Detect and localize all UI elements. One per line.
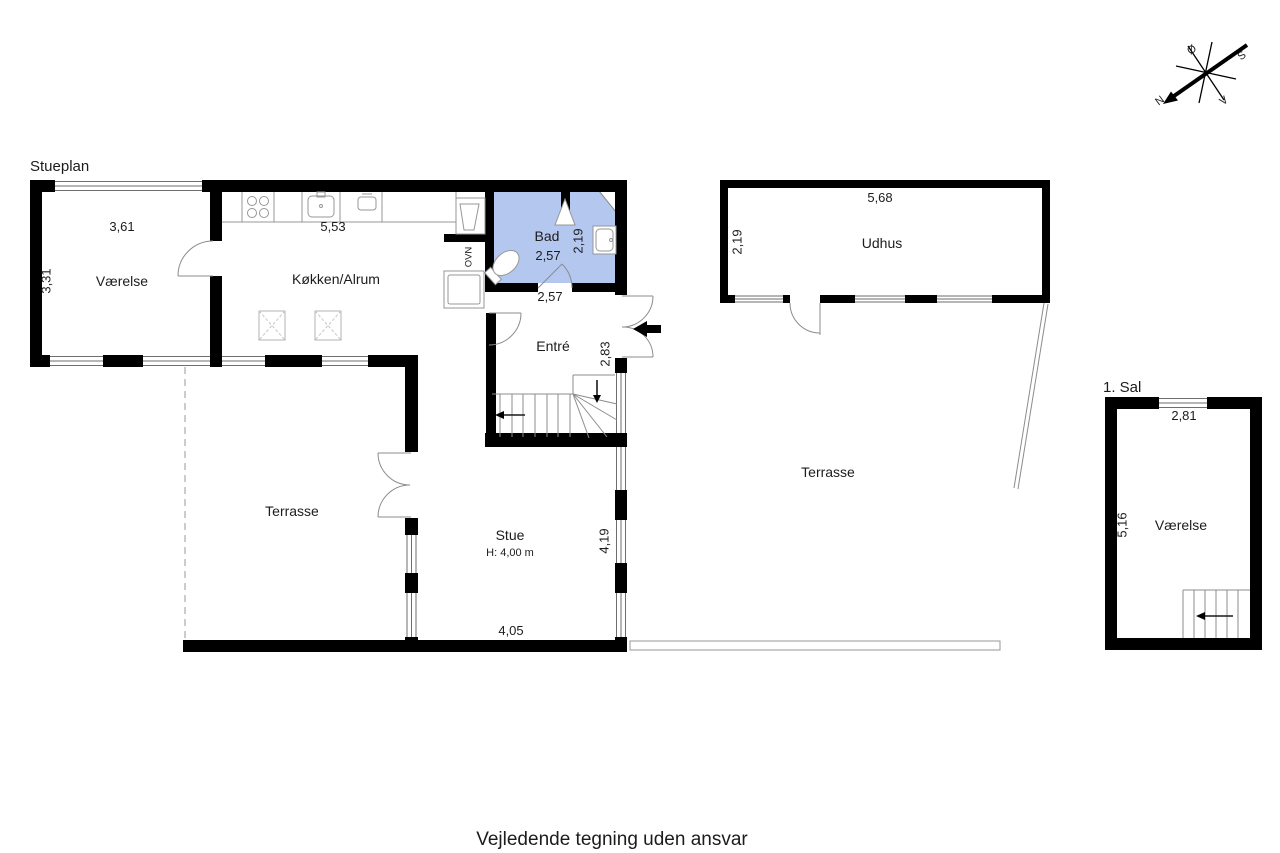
dim-koekken-width: 5,53 — [320, 219, 345, 234]
window-vaerelse-north — [55, 180, 202, 192]
window-south-4 — [322, 355, 368, 367]
window-south-2 — [143, 355, 210, 367]
dim-entre-width: 2,57 — [537, 289, 562, 304]
floorplan-svg: N Ø S V Stueplan 1. Sal Værelse 3,61 3,3… — [0, 0, 1280, 853]
compass-west-label: V — [1217, 94, 1231, 108]
room-label-koekken: Køkken/Alrum — [292, 271, 380, 287]
room-label-sal-vaerelse: Værelse — [1155, 517, 1207, 533]
room-label-entre: Entré — [536, 338, 570, 354]
oven-label: OVN — [464, 247, 475, 268]
room-label-bad: Bad — [535, 228, 560, 244]
door-udhus — [790, 303, 820, 335]
window-east-3 — [615, 520, 627, 563]
room-label-udhus: Udhus — [862, 235, 902, 251]
compass-icon: N Ø S V — [1153, 42, 1248, 108]
stairs-first-floor — [1183, 590, 1250, 638]
kitchen-sink-icon — [308, 192, 334, 217]
dim-bad-width: 2,57 — [535, 248, 560, 263]
window-south-1 — [50, 355, 103, 367]
washbasin-icon — [593, 226, 616, 254]
kitchen-counter — [222, 192, 456, 222]
ground-floor-title: Stueplan — [30, 158, 89, 175]
room-label-vaerelse: Værelse — [96, 273, 148, 289]
stairs-ground-floor — [492, 375, 617, 438]
dim-vaerelse-width: 3,61 — [109, 219, 134, 234]
compass-east-label: Ø — [1185, 42, 1199, 57]
window-east-1 — [615, 373, 627, 433]
window-east-4 — [615, 593, 627, 637]
window-east-2 — [615, 447, 627, 490]
window-stue-west-2 — [405, 593, 418, 637]
water-heater-icon — [456, 198, 485, 234]
dim-stue-depth: 4,19 — [597, 528, 612, 553]
window-stue-west-1 — [405, 535, 418, 573]
compass-north-label: N — [1153, 94, 1167, 108]
dim-vaerelse-depth: 3,31 — [39, 268, 54, 293]
door-vaerelse — [178, 241, 213, 276]
dim-stue-width: 4,05 — [498, 623, 523, 638]
room-label-terrasse-left: Terrasse — [265, 503, 319, 519]
window-udhus-1 — [735, 295, 783, 303]
floorplan-page: N Ø S V Stueplan 1. Sal Værelse 3,61 3,3… — [0, 0, 1280, 853]
dim-entre-depth: 2,83 — [598, 341, 613, 366]
kitchen-faucet-icon — [358, 194, 376, 210]
oven-appliance-icon — [444, 271, 484, 308]
compass-south-label: S — [1235, 49, 1248, 63]
dim-udhus-depth: 2,19 — [730, 229, 745, 254]
dim-bad-depth: 2,19 — [571, 228, 586, 253]
disclaimer-text: Vejledende tegning uden ansvar — [476, 829, 748, 850]
fence-diagonal-line — [1014, 303, 1048, 489]
kitchen-island-skylight-2 — [315, 311, 341, 340]
window-udhus-3 — [937, 295, 992, 303]
kitchen-island-skylight-1 — [259, 311, 285, 340]
stue-ceiling-height: H: 4,00 m — [486, 547, 534, 559]
dim-sal-vaerelse-width: 2,81 — [1171, 408, 1196, 423]
stove-icon — [248, 197, 269, 218]
window-udhus-2 — [855, 295, 905, 303]
window-south-3 — [222, 355, 265, 367]
room-label-terrasse-right: Terrasse — [801, 464, 855, 480]
dim-sal-vaerelse-depth: 5,16 — [1115, 512, 1130, 537]
terrasse-edge-line — [630, 641, 1000, 650]
first-floor-title: 1. Sal — [1103, 379, 1141, 396]
dim-udhus-width: 5,68 — [867, 190, 892, 205]
room-label-stue: Stue — [496, 527, 525, 543]
